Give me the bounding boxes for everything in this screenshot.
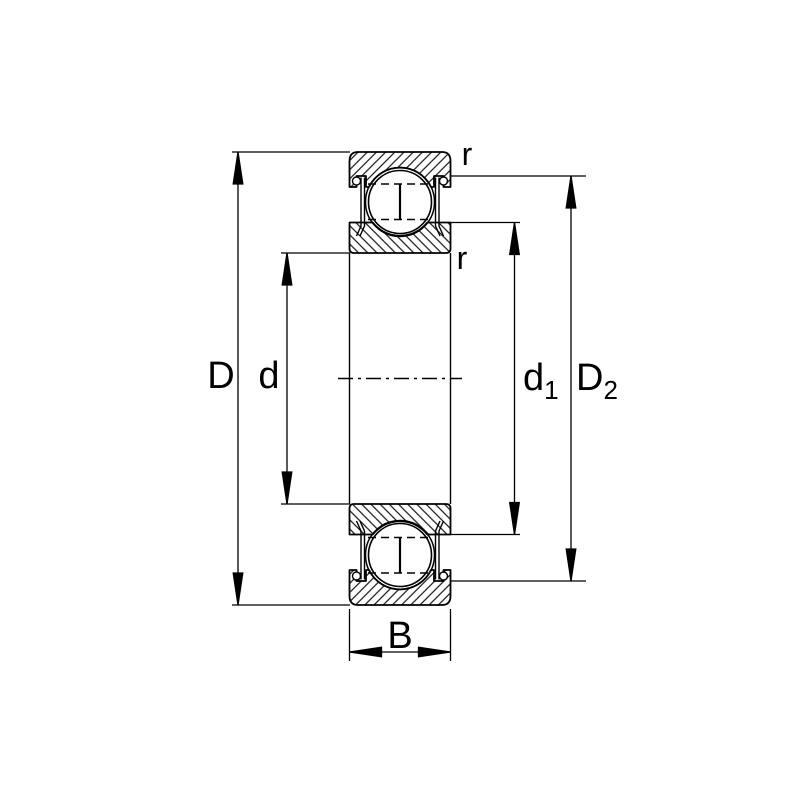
bearing-drawing-svg: D d d1 D2 B r r — [0, 0, 800, 800]
label-shoulder-diameter: d1 — [523, 357, 559, 405]
label-D2-base: D — [576, 357, 603, 399]
arrowhead-up-icon — [282, 253, 292, 285]
shield-curl-icon — [353, 177, 361, 185]
shield-curl-icon — [440, 177, 448, 185]
arrowhead-left-icon — [350, 647, 382, 657]
arrowhead-down-icon — [510, 503, 520, 535]
arrowhead-down-icon — [233, 573, 243, 605]
label-radius-inner: r — [457, 240, 468, 276]
label-D2-subscript: 2 — [603, 375, 617, 405]
bearing-section-bottom — [350, 504, 451, 605]
arrowhead-right-icon — [419, 647, 451, 657]
arrowhead-up-icon — [233, 152, 243, 184]
label-width: B — [387, 615, 412, 657]
label-outer-diameter: D — [207, 355, 234, 397]
dimension-D2 — [451, 176, 587, 581]
arrowhead-down-icon — [566, 549, 576, 581]
bearing-body — [338, 152, 462, 605]
arrowhead-down-icon — [282, 472, 292, 504]
bearing-section-top — [350, 152, 451, 253]
label-d1-subscript: 1 — [544, 375, 558, 405]
arrowhead-up-icon — [510, 223, 520, 255]
dimension-D — [232, 152, 350, 605]
arrowhead-up-icon — [566, 176, 576, 208]
shield-curl-icon — [353, 572, 361, 580]
bearing-diagram: D d d1 D2 B r r — [0, 0, 800, 800]
shield-curl-icon — [440, 572, 448, 580]
label-d1-base: d — [523, 357, 544, 399]
label-bore-diameter: d — [258, 355, 279, 397]
label-radius-outer: r — [462, 136, 473, 172]
label-recess-diameter: D2 — [576, 357, 618, 405]
